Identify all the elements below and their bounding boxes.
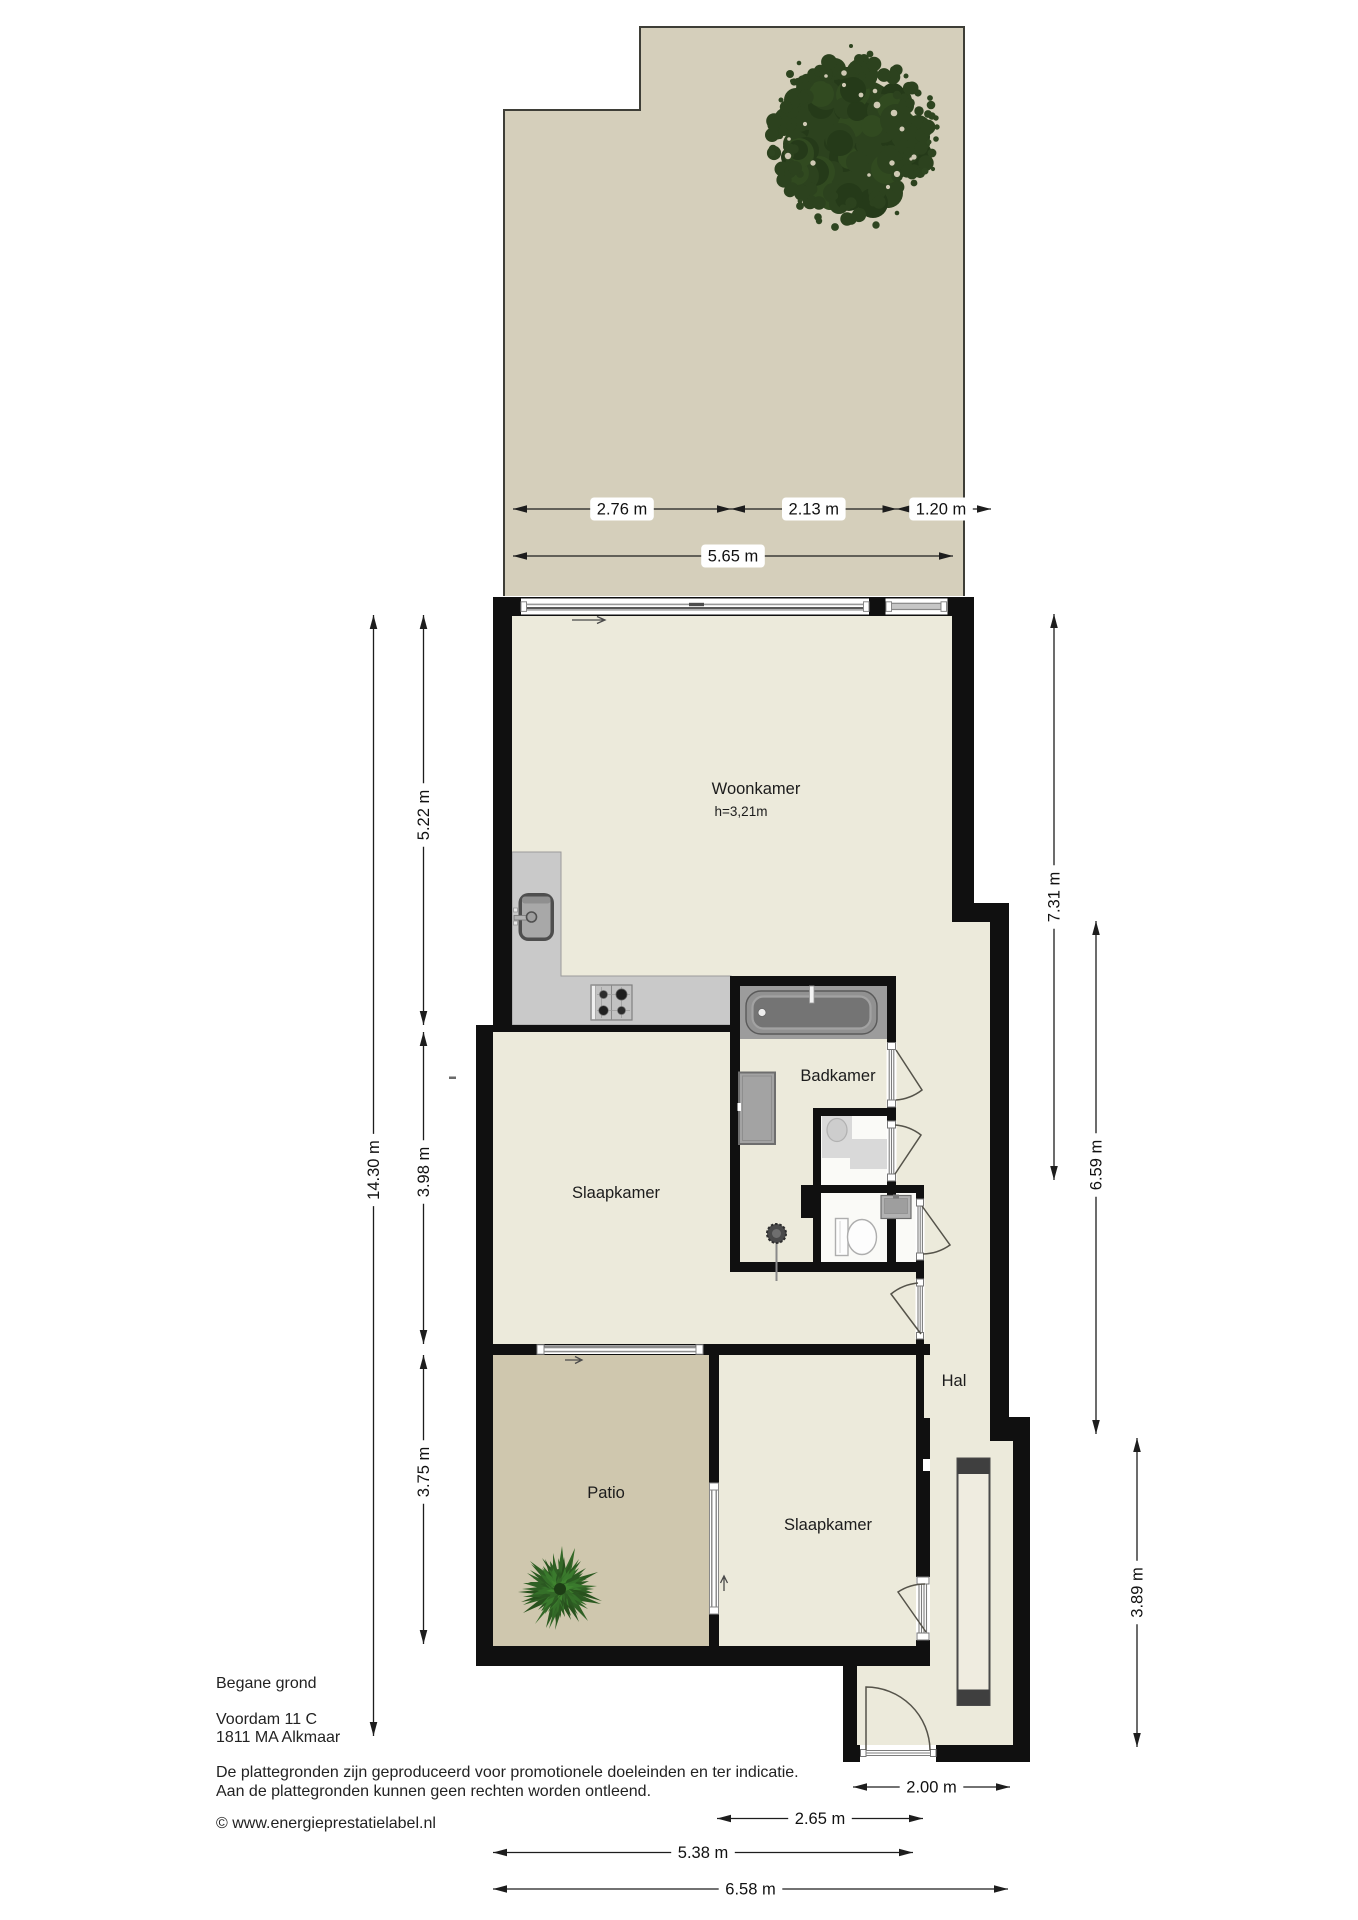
svg-text:5.65 m: 5.65 m (708, 548, 758, 566)
svg-text:14.30 m: 14.30 m (365, 1140, 383, 1200)
svg-text:2.13 m: 2.13 m (789, 501, 839, 519)
svg-text:Slaapkamer: Slaapkamer (572, 1184, 661, 1202)
svg-text:Aan de plattegronden kunnen ge: Aan de plattegronden kunnen geen rechten… (216, 1783, 651, 1800)
svg-text:1.20 m: 1.20 m (916, 501, 966, 519)
svg-text:6.59 m: 6.59 m (1088, 1140, 1106, 1190)
svg-text:1811 MA Alkmaar: 1811 MA Alkmaar (216, 1729, 341, 1746)
svg-text:2.76 m: 2.76 m (597, 501, 647, 519)
svg-text:2.00 m: 2.00 m (906, 1779, 956, 1797)
svg-text:7.31 m: 7.31 m (1046, 872, 1064, 922)
svg-text:2.65 m: 2.65 m (795, 1810, 845, 1828)
svg-text:5.38 m: 5.38 m (678, 1844, 728, 1862)
svg-text:© www.energieprestatielabel.nl: © www.energieprestatielabel.nl (216, 1815, 436, 1832)
svg-text:Badkamer: Badkamer (800, 1067, 876, 1085)
svg-text:Woonkamer: Woonkamer (712, 780, 801, 798)
svg-text:Hal: Hal (942, 1372, 967, 1390)
svg-text:6.58 m: 6.58 m (725, 1881, 775, 1899)
svg-text:h=3,21m: h=3,21m (715, 804, 768, 819)
svg-text:Patio: Patio (587, 1484, 625, 1502)
svg-text:Begane grond: Begane grond (216, 1675, 317, 1692)
svg-text:Voordam 11 C: Voordam 11 C (216, 1711, 317, 1728)
svg-text:5.22 m: 5.22 m (415, 790, 433, 840)
svg-text:3.98 m: 3.98 m (415, 1147, 433, 1197)
svg-text:3.89 m: 3.89 m (1129, 1567, 1147, 1617)
svg-text:3.75 m: 3.75 m (415, 1447, 433, 1497)
svg-text:Slaapkamer: Slaapkamer (784, 1516, 873, 1534)
svg-text:De plattegronden zijn geproduc: De plattegronden zijn geproduceerd voor … (216, 1764, 799, 1781)
